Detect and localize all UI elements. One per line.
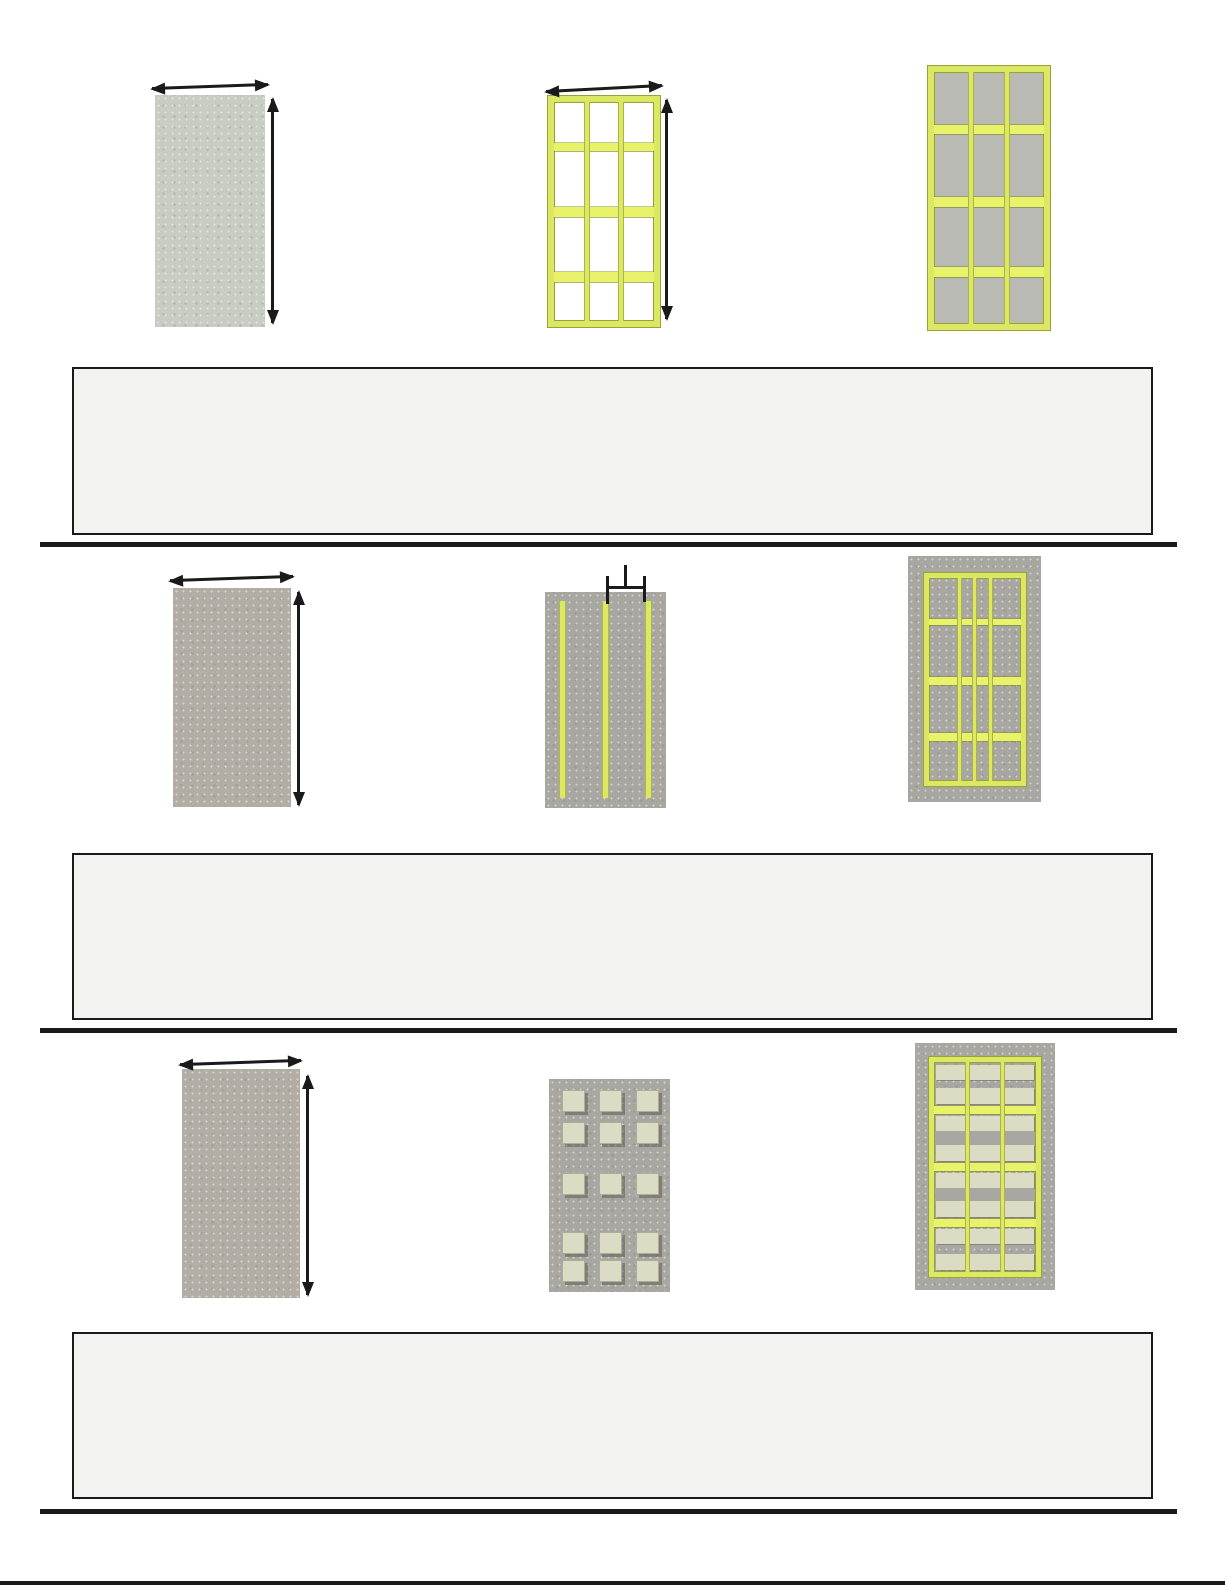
panel-surface [173,588,291,807]
sheathing-square [599,1232,622,1254]
frame-stud [965,1062,970,1272]
blocking-strip [936,1145,1034,1161]
frame-rail [934,267,1044,277]
sheathing-square [636,1173,659,1195]
frame-stud [1004,72,1010,324]
frame-stud [1000,1062,1005,1272]
frame-center-stud [972,578,977,781]
spacing-mark-center-tick [624,565,627,589]
sheathing-square [562,1260,585,1282]
sheathing-square [562,1122,585,1144]
width-arrow-icon [546,84,662,93]
frame-stud [988,578,993,781]
frame-rail [934,1163,1036,1171]
height-arrow-icon [665,100,668,319]
cavity [936,1188,1034,1201]
width-arrow-icon [152,83,268,90]
sheathing-square [599,1173,622,1195]
frame-stud [559,601,566,798]
frame-rail [554,143,654,151]
sheathing-square [599,1090,622,1112]
sheathing-square [562,1232,585,1254]
section-divider-1 [40,542,1177,547]
frame-rail [934,125,1044,134]
height-arrow-icon [271,99,274,323]
panel-surface [549,1079,670,1292]
blocking-strip [936,1065,1034,1080]
frame-rail [934,1106,1036,1114]
blocking-strip [936,1254,1034,1270]
sheathing-square [636,1090,659,1112]
answer-box-1[interactable] [72,367,1153,535]
sheathing-square [636,1232,659,1254]
sheathing-square [599,1260,622,1282]
section-divider-3 [40,1509,1177,1514]
answer-box-2[interactable] [72,853,1153,1020]
worksheet-page [0,0,1225,1585]
spacing-mark-left-tick [606,576,609,604]
sheathing-square [562,1090,585,1112]
sheathing-square [599,1122,622,1144]
panel-surface [155,95,265,327]
frame-border [928,66,1050,330]
spacing-mark-right-tick [643,576,646,602]
frame-stud [645,601,652,798]
sheathing-square [562,1173,585,1195]
frame-border [548,96,660,327]
width-arrow-icon [180,1059,301,1066]
height-arrow-icon [297,592,300,805]
frame-stud [602,601,609,798]
blocking-strip [936,1116,1034,1131]
blocking-strip [936,1229,1034,1244]
blocking-strip [936,1088,1034,1104]
frame-border [929,1057,1041,1277]
panel-surface [182,1069,300,1298]
frame-stud [618,102,624,321]
width-arrow-icon [170,575,293,582]
frame-rail [934,1219,1036,1227]
panel-surface [908,556,1041,802]
frame-stud [957,578,962,781]
frame-border [924,573,1026,786]
blocking-strip [936,1201,1034,1217]
frame-rail [554,272,654,282]
sheathing-square [636,1122,659,1144]
frame-rail [934,197,1044,207]
page-bottom-rule [0,1581,1225,1585]
cavity [936,1131,1034,1145]
sheathing-square [636,1260,659,1282]
frame-rail [554,207,654,217]
frame-stud [584,102,590,321]
frame-stud [968,72,974,324]
panel-surface [915,1043,1055,1290]
height-arrow-icon [306,1076,309,1295]
answer-box-3[interactable] [72,1332,1153,1499]
section-divider-2 [40,1028,1177,1033]
blocking-strip [936,1173,1034,1188]
